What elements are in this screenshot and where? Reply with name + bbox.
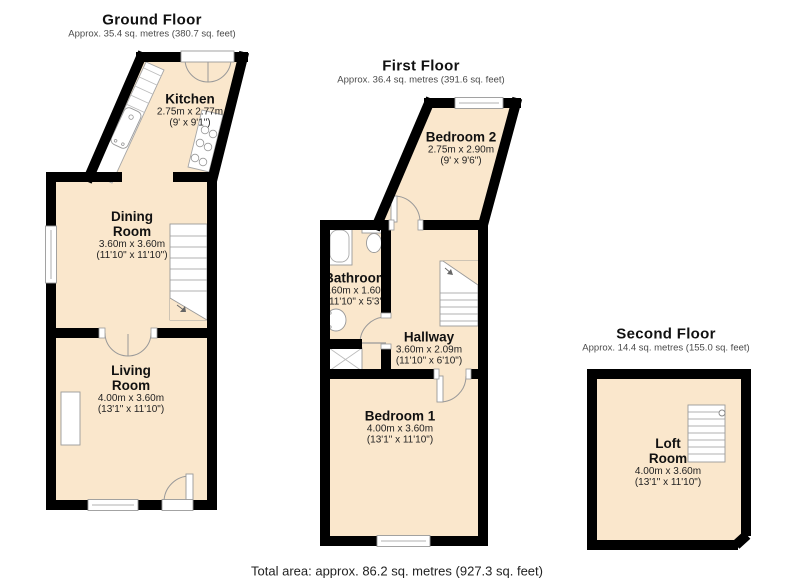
floorplan-base-graphics <box>0 0 800 582</box>
room-label-dining-room: Dining Room 3.60m x 3.60m (11'10" x 11'1… <box>92 209 172 261</box>
first-floor-footprint <box>325 103 519 541</box>
room-label-bedroom1: Bedroom 1 4.00m x 3.60m (13'1" x 11'10") <box>365 409 436 446</box>
floorplan-page: Ground Floor Approx. 35.4 sq. metres (38… <box>0 0 800 582</box>
room-name: Loft Room <box>643 436 693 466</box>
room-label-hallway: Hallway 3.60m x 2.09m (11'10" x 6'10") <box>396 330 462 367</box>
room-label-kitchen: Kitchen 2.75m x 2.77m (9' x 9'1") <box>157 92 223 129</box>
total-area-text: Total area: approx. 86.2 sq. metres (927… <box>251 564 543 579</box>
first-floor-title: First Floor <box>382 58 459 75</box>
room-imperial: (11'10" x 11'10") <box>96 250 167 261</box>
room-label-bedroom2: Bedroom 2 2.75m x 2.90m (9' x 9'6") <box>426 130 497 167</box>
room-metric: 3.60m x 3.60m <box>99 239 165 250</box>
shower-tray <box>329 348 362 371</box>
room-name: Kitchen <box>165 92 215 107</box>
room-label-living-room: Living Room 4.00m x 3.60m (13'1" x 11'10… <box>91 363 171 415</box>
room-name: Bedroom 1 <box>365 409 436 424</box>
second-floor-title: Second Floor <box>616 326 715 343</box>
ground-floor-stairs <box>170 224 207 320</box>
room-metric: 2.75m x 2.77m <box>157 107 223 118</box>
living-room-chimney-breast <box>61 392 80 445</box>
ground-floor-subtitle: Approx. 35.4 sq. metres (380.7 sq. feet) <box>68 29 235 40</box>
room-name: Bathroom <box>324 271 388 286</box>
room-metric: 4.00m x 3.60m <box>635 466 701 477</box>
basin <box>326 309 346 331</box>
room-imperial: (9' x 9'1") <box>169 118 210 129</box>
room-imperial: (11'10" x 6'10") <box>396 356 462 367</box>
room-name: Dining Room <box>92 209 172 239</box>
room-label-bathroom: Bathroom 3.60m x 1.60m (11'10" x 5'3") <box>323 271 389 308</box>
room-metric: 4.00m x 3.60m <box>98 393 164 404</box>
room-metric: 3.60m x 1.60m <box>323 286 389 297</box>
second-floor-subtitle: Approx. 14.4 sq. metres (155.0 sq. feet) <box>582 343 749 354</box>
room-imperial: (13'1" x 11'10") <box>367 435 433 446</box>
room-label-loft-room: Loft Room 4.00m x 3.60m (13'1" x 11'10") <box>635 436 701 488</box>
room-metric: 4.00m x 3.60m <box>367 424 433 435</box>
room-imperial: (13'1" x 11'10") <box>98 404 164 415</box>
room-imperial: (9' x 9'6") <box>440 156 481 167</box>
room-imperial: (13'1" x 11'10") <box>635 477 701 488</box>
room-name: Living Room <box>91 363 171 393</box>
room-name: Bedroom 2 <box>426 130 497 145</box>
room-metric: 2.75m x 2.90m <box>428 145 494 156</box>
bathtub <box>327 224 352 265</box>
first-floor-subtitle: Approx. 36.4 sq. metres (391.6 sq. feet) <box>337 75 504 86</box>
ground-floor-title: Ground Floor <box>102 12 201 29</box>
room-metric: 3.60m x 2.09m <box>396 345 462 356</box>
room-name: Hallway <box>404 330 454 345</box>
first-floor-stairs <box>440 261 478 326</box>
room-imperial: (11'10" x 5'3") <box>326 297 387 308</box>
